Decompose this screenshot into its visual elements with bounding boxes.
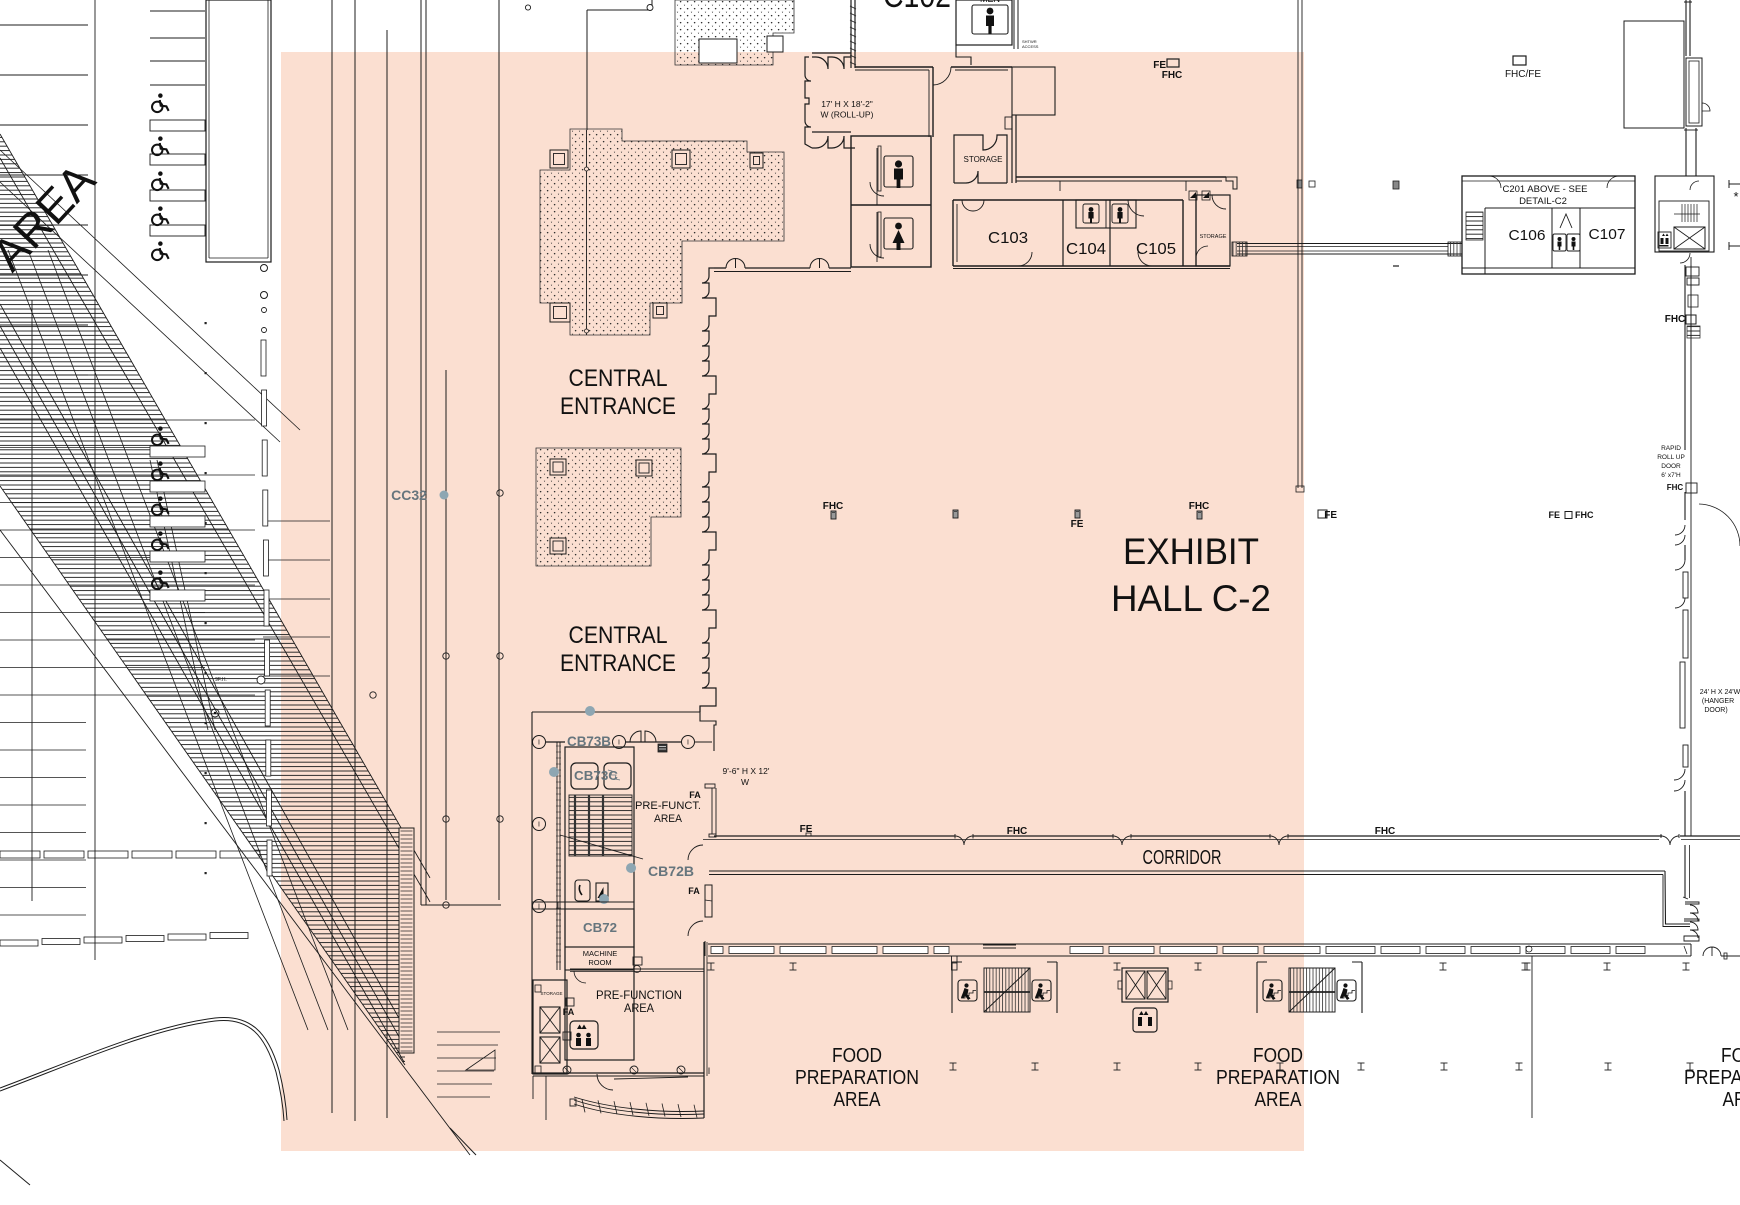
svg-text:AREA: AREA [654, 813, 683, 825]
svg-text:I: I [538, 740, 540, 747]
svg-text:PRE-FUNCTION: PRE-FUNCTION [596, 988, 682, 1002]
svg-text:I: I [708, 1066, 711, 1076]
svg-text:C104: C104 [1066, 241, 1106, 258]
svg-text:PREPARATION: PREPARATION [795, 1067, 919, 1089]
svg-text:AREA: AREA [1723, 1089, 1740, 1111]
svg-text:FA: FA [688, 886, 700, 896]
svg-text:FA: FA [563, 1007, 575, 1017]
svg-text:I: I [538, 904, 540, 911]
svg-text:CORRIDOR: CORRIDOR [1143, 847, 1222, 869]
svg-text:FOOD: FOOD [832, 1045, 882, 1067]
svg-text:C103: C103 [988, 230, 1028, 247]
svg-text:ACCESS: ACCESS [1022, 44, 1039, 49]
svg-text:FE: FE [1071, 519, 1084, 530]
svg-text:9'-6" H X 12': 9'-6" H X 12' [723, 766, 770, 776]
svg-text:EXHIBIT: EXHIBIT [1123, 531, 1259, 572]
svg-text:W (ROLL-UP): W (ROLL-UP) [821, 110, 874, 120]
svg-text:STORAGE: STORAGE [541, 991, 563, 996]
svg-text:DOOR): DOOR) [1704, 707, 1727, 714]
svg-text:DETAIL-C2: DETAIL-C2 [1519, 196, 1567, 207]
svg-text:ENTRANCE: ENTRANCE [560, 650, 676, 677]
svg-text:FHC: FHC [1575, 510, 1594, 520]
svg-text:I: I [538, 822, 540, 829]
svg-text:C107: C107 [1589, 226, 1626, 243]
svg-text:ROOM: ROOM [588, 958, 611, 967]
svg-text:9F.H.: 9F.H. [215, 677, 227, 683]
svg-text:W: W [741, 777, 749, 787]
svg-text:MACHINE: MACHINE [583, 949, 618, 958]
svg-text:AREA: AREA [624, 1001, 654, 1015]
svg-text:C102: C102 [883, 0, 951, 15]
svg-text:CB72B: CB72B [648, 863, 694, 879]
svg-text:FOOD: FOOD [1721, 1045, 1740, 1067]
svg-text:FHC: FHC [823, 501, 844, 512]
svg-text:STORAGE: STORAGE [964, 155, 1003, 164]
svg-text:I: I [618, 740, 620, 747]
svg-text:I: I [687, 740, 689, 747]
svg-text:FHC: FHC [1162, 70, 1183, 81]
svg-text:C105: C105 [1136, 241, 1176, 258]
svg-text:CC32: CC32 [391, 487, 427, 503]
svg-text:FE: FE [1548, 510, 1560, 520]
svg-text:AREA: AREA [834, 1089, 882, 1111]
svg-text:*: * [1733, 189, 1738, 204]
svg-text:CB73C: CB73C [574, 768, 619, 783]
svg-text:CB73B: CB73B [567, 733, 611, 749]
svg-text:FHC: FHC [1189, 501, 1210, 512]
svg-text:FOOD: FOOD [1253, 1045, 1303, 1067]
svg-text:C201 ABOVE - SEE: C201 ABOVE - SEE [1502, 184, 1587, 195]
svg-text:STORAGE: STORAGE [1200, 234, 1227, 240]
svg-text:FHC/FE: FHC/FE [1505, 69, 1541, 80]
svg-text:AREA: AREA [1255, 1089, 1303, 1111]
svg-text:FE: FE [1324, 510, 1337, 521]
svg-text:C106: C106 [1509, 227, 1546, 244]
svg-text:(HANGER: (HANGER [1702, 698, 1734, 705]
svg-text:CENTRAL: CENTRAL [569, 365, 668, 392]
svg-text:CENTRAL: CENTRAL [569, 622, 668, 649]
svg-text:17' H X 18'-2": 17' H X 18'-2" [821, 99, 873, 109]
svg-text:FHC: FHC [1665, 314, 1686, 325]
svg-text:FA: FA [689, 790, 701, 800]
svg-text:FHC: FHC [1667, 483, 1684, 492]
svg-text:RAPID: RAPID [1661, 445, 1681, 452]
svg-text:DOOR: DOOR [1661, 463, 1681, 470]
svg-text:24' H X 24'W: 24' H X 24'W [1700, 689, 1740, 696]
svg-text:ENTRANCE: ENTRANCE [560, 393, 676, 420]
svg-text:HALL C-2: HALL C-2 [1111, 578, 1271, 619]
svg-text:PRE-FUNCT.: PRE-FUNCT. [635, 800, 701, 812]
svg-text:MEN: MEN [980, 0, 1000, 4]
svg-text:6' x7'H: 6' x7'H [1661, 472, 1681, 479]
svg-text:ROLL UP: ROLL UP [1657, 454, 1685, 461]
svg-text:CB72: CB72 [583, 920, 617, 935]
